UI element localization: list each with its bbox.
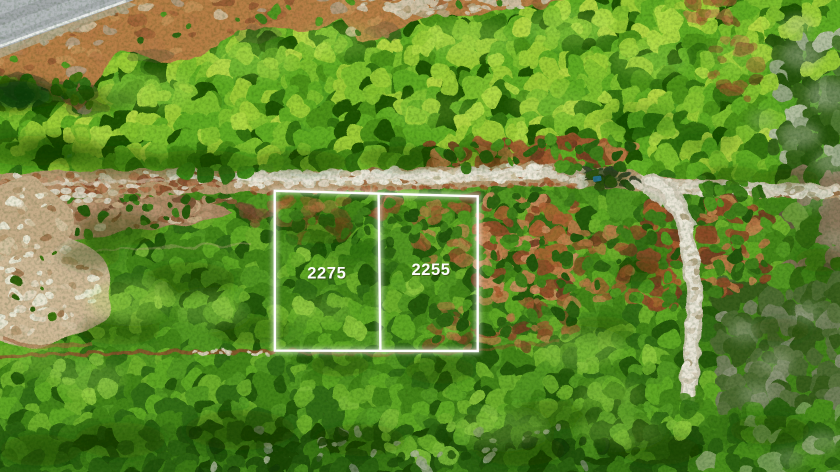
svg-text:2255: 2255: [411, 261, 450, 279]
svg-text:2275: 2275: [307, 265, 346, 283]
